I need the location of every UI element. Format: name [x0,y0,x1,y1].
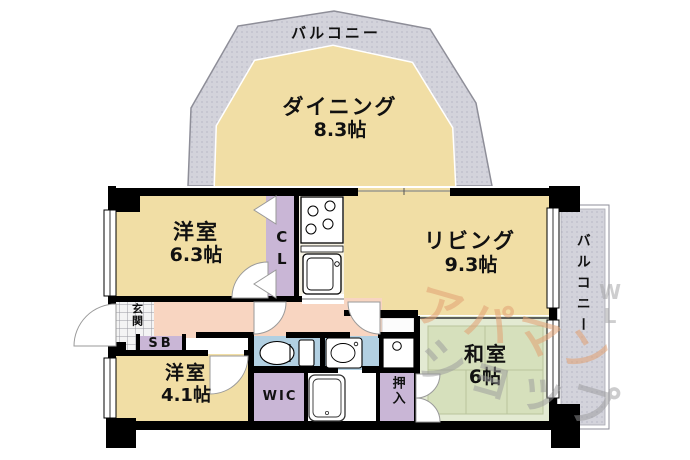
toilet-fixture [260,340,314,366]
wash-vestibule [382,318,414,334]
western1-name: 洋室 [173,221,219,243]
western2-size: 4.1帖 [161,387,211,406]
western1-size: 6.3帖 [170,246,223,266]
oshiire-label: 押入 [390,376,404,406]
living-name: リビング [424,230,516,252]
floorplan-canvas: バルコニー ダイニング 8.3帖 洋室 6.3帖 CL リビング 9.3帖 バル… [0,0,690,460]
kitchen-pass-opening [302,294,344,304]
washbasin-fixture [326,338,362,368]
dining-name: ダイニング [283,96,398,118]
wic-label: WIC [263,390,298,404]
cl-label: CL [273,228,289,272]
entrance-label: 玄関 [131,303,143,327]
western2-name: 洋室 [165,364,207,384]
washing-machine-pan [383,338,414,368]
sliding-door-dining-living [358,188,450,196]
balcony-top-label: バルコニー [291,26,381,42]
floorplan-drawing [0,0,690,460]
japanese-size: 6帖 [469,368,501,388]
bathtub [309,375,345,421]
japanese-name: 和室 [464,344,508,365]
living-size: 9.3帖 [445,256,498,276]
entrance-door [74,304,116,346]
dining-size: 8.3帖 [314,121,367,141]
balcony-right-label: バルコニー [575,233,590,338]
shoe-box-label: SB [148,337,173,351]
